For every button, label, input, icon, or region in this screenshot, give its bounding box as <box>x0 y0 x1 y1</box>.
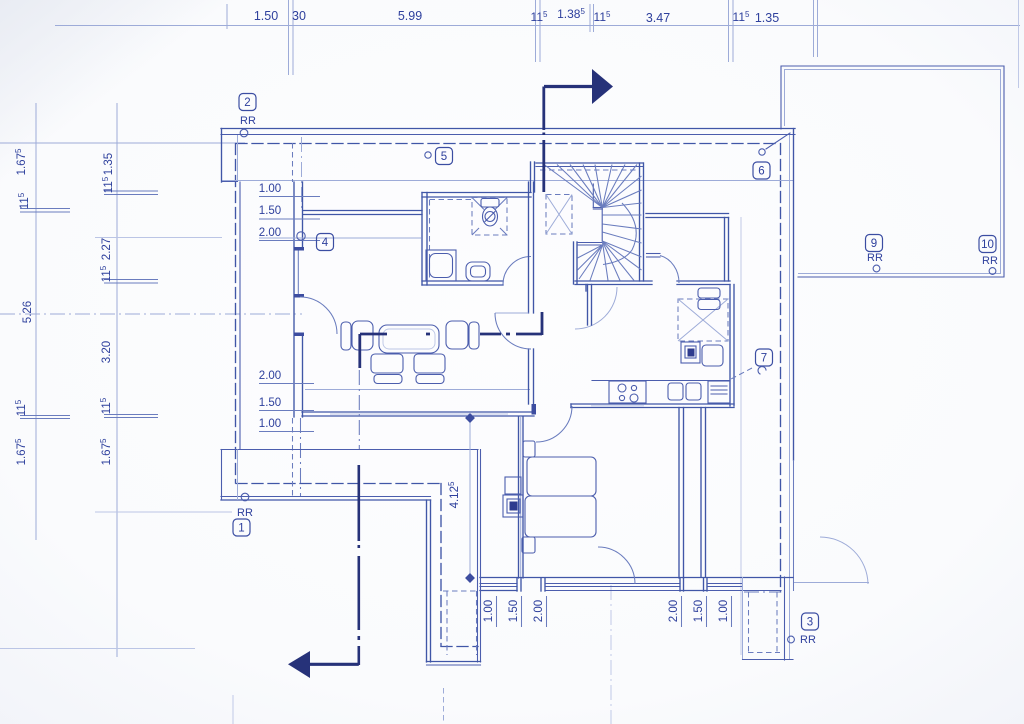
svg-text:1.00: 1.00 <box>483 600 495 622</box>
svg-text:2.27: 2.27 <box>101 238 113 260</box>
svg-text:1.50: 1.50 <box>254 9 278 23</box>
svg-text:RR: RR <box>800 634 816 646</box>
svg-text:2: 2 <box>244 97 250 109</box>
svg-text:1.50: 1.50 <box>508 600 520 622</box>
svg-text:RR: RR <box>867 252 883 264</box>
svg-text:RR: RR <box>237 507 253 519</box>
svg-text:30: 30 <box>292 9 306 23</box>
svg-text:3: 3 <box>807 617 813 629</box>
svg-text:1.35: 1.35 <box>103 153 115 175</box>
svg-text:1.50: 1.50 <box>259 205 281 217</box>
svg-text:1: 1 <box>238 523 244 535</box>
svg-text:4: 4 <box>322 237 329 249</box>
svg-text:2.00: 2.00 <box>259 370 281 382</box>
svg-text:1.50: 1.50 <box>259 397 281 409</box>
svg-text:10: 10 <box>981 239 994 251</box>
svg-text:RR: RR <box>982 255 998 267</box>
svg-text:1.00: 1.00 <box>718 600 730 622</box>
svg-text:RR: RR <box>240 115 256 127</box>
svg-text:5: 5 <box>441 151 447 163</box>
svg-text:3.47: 3.47 <box>646 11 670 25</box>
svg-text:5.99: 5.99 <box>398 9 422 23</box>
svg-text:1.35: 1.35 <box>755 11 779 25</box>
svg-text:5.26: 5.26 <box>22 301 34 323</box>
svg-text:6: 6 <box>758 166 764 178</box>
svg-text:1.50: 1.50 <box>693 600 705 622</box>
svg-text:7: 7 <box>761 353 767 365</box>
svg-text:2.00: 2.00 <box>668 600 680 622</box>
svg-text:9: 9 <box>871 238 877 250</box>
svg-text:2.00: 2.00 <box>259 227 281 239</box>
svg-text:2.00: 2.00 <box>533 600 545 622</box>
svg-text:1.00: 1.00 <box>259 183 281 195</box>
svg-text:3.20: 3.20 <box>101 341 113 363</box>
svg-text:1.00: 1.00 <box>259 418 281 430</box>
